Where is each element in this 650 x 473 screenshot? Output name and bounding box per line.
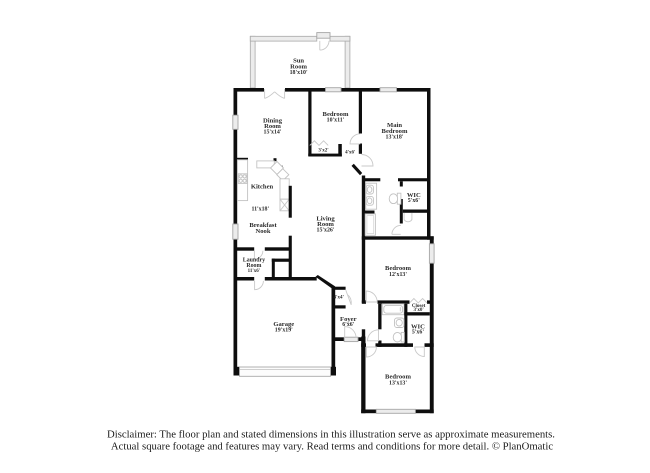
svg-text:13'x13': 13'x13' xyxy=(389,380,407,386)
svg-text:Disclaimer: The floor plan and: Disclaimer: The floor plan and stated di… xyxy=(107,428,555,440)
svg-text:4'x6': 4'x6' xyxy=(345,150,356,155)
svg-text:Actual square footage and feat: Actual square footage and features may v… xyxy=(111,440,553,452)
svg-text:Bedroom: Bedroom xyxy=(385,373,411,380)
svg-text:19'x19': 19'x19' xyxy=(275,328,293,334)
svg-text:Kitchen: Kitchen xyxy=(251,183,274,190)
svg-text:18'x10': 18'x10' xyxy=(290,70,308,76)
svg-text:Bedroom: Bedroom xyxy=(385,265,411,272)
svg-text:12'x13': 12'x13' xyxy=(389,272,407,278)
svg-text:11'x18': 11'x18' xyxy=(251,206,269,212)
svg-text:Nook: Nook xyxy=(255,228,270,235)
svg-text:10'x11': 10'x11' xyxy=(327,117,345,123)
svg-text:11'x6': 11'x6' xyxy=(248,269,261,274)
svg-text:15'x26': 15'x26' xyxy=(317,228,335,234)
svg-text:5'x6': 5'x6' xyxy=(408,198,420,204)
svg-text:4'x4': 4'x4' xyxy=(334,296,345,301)
svg-text:13'x18': 13'x18' xyxy=(386,135,404,141)
svg-text:5'x6': 5'x6' xyxy=(412,329,424,335)
svg-text:15'x14': 15'x14' xyxy=(264,130,282,136)
svg-text:3'x2': 3'x2' xyxy=(318,148,329,153)
svg-text:3'x0': 3'x0' xyxy=(413,308,424,313)
svg-text:Room: Room xyxy=(246,263,261,269)
